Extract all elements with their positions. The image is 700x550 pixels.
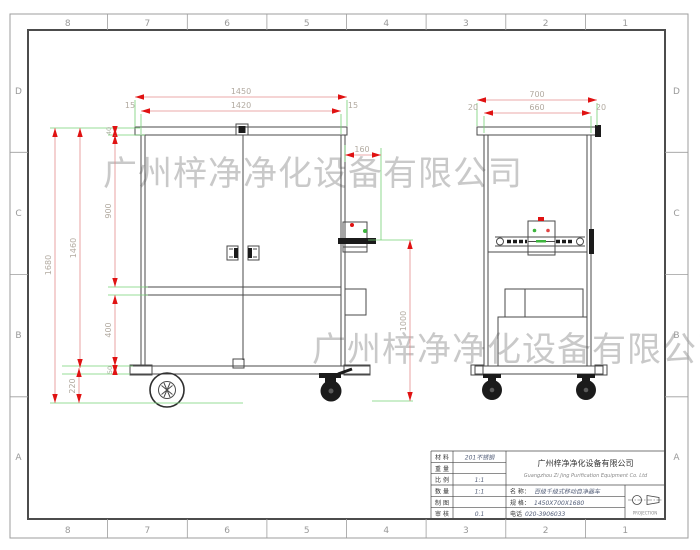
title-block-company: 广州梓净净化设备有限公司 Guangzhou Zi Jing Purificat… <box>524 458 648 479</box>
lower-side-box <box>345 289 366 315</box>
grid-col-label: 8 <box>65 526 71 536</box>
grid-col-label: 4 <box>383 526 389 536</box>
projection-label: PROJECTION <box>633 511 658 516</box>
green-indicator <box>363 229 367 233</box>
row-label: 重 量 <box>435 465 449 473</box>
row-value: 0.1 <box>475 511 485 518</box>
inner-border <box>28 30 665 519</box>
dim-1420: 1420 <box>231 101 251 110</box>
green-indicator <box>533 229 537 233</box>
grid-col-label: 3 <box>463 526 469 536</box>
grid-row-label: C <box>673 209 679 219</box>
dim-20-left: 20 <box>468 103 478 112</box>
dim-1000: 1000 <box>399 311 408 331</box>
dim-700: 700 <box>529 90 544 99</box>
name-label: 名 称： <box>510 488 530 496</box>
red-indicator <box>546 229 550 233</box>
drawing-svg: 广州梓净净化设备有限公司 广州梓净净化设备有限公司 8 7 6 5 <box>0 0 700 550</box>
cad-drawing-sheet: 广州梓净净化设备有限公司 广州梓净净化设备有限公司 8 7 6 5 <box>0 0 700 550</box>
watermark-text: 广州梓净净化设备有限公司 <box>103 154 523 194</box>
grid-col-label: 5 <box>304 526 310 536</box>
name-value: 百级千级式移动自净器车 <box>534 488 601 496</box>
grid-col-label: 2 <box>543 526 549 536</box>
title-block: 材 料 201不锈钢 重 量 比 例 1:1 数 量 1:1 制 图 审 核 0… <box>431 451 665 519</box>
door-handle-right <box>248 246 259 260</box>
red-button <box>538 217 544 221</box>
dimension-texts: 700 660 20 20 <box>468 90 606 112</box>
grid-col-label: 5 <box>304 19 310 29</box>
grid-col-label: 8 <box>65 19 71 29</box>
row-value: 1:1 <box>475 477 485 484</box>
grid-row-label: C <box>15 209 21 219</box>
row-label: 制 图 <box>435 499 449 507</box>
side-control-box <box>338 222 376 252</box>
left-caster <box>482 374 502 400</box>
watermark-upper: 广州梓净净化设备有限公司 <box>103 154 523 194</box>
dim-50: 50 <box>106 366 114 374</box>
dim-160: 160 <box>354 145 369 154</box>
grid-col-label: 7 <box>145 19 151 29</box>
grid-col-label: 1 <box>622 19 628 29</box>
plate-end-cap <box>595 125 601 137</box>
grid-col-label: 1 <box>622 526 628 536</box>
grid-row-label: D <box>673 87 680 97</box>
phone-value: 020-3906033 <box>525 511 566 518</box>
row-label: 数 量 <box>435 488 449 496</box>
grid-col-label: 3 <box>463 19 469 29</box>
grid-row-label: B <box>15 331 21 341</box>
side-latch <box>589 229 594 254</box>
dim-15-left: 15 <box>125 101 135 110</box>
dim-400: 400 <box>104 322 113 337</box>
spec-value: 1450X700X1680 <box>534 500 584 507</box>
push-rail <box>495 237 585 246</box>
control-panel <box>528 217 555 255</box>
rail-green-mark <box>536 240 546 243</box>
projection-symbol: PROJECTION <box>628 496 662 516</box>
grid-col-label: 6 <box>224 526 230 536</box>
spec-label: 规 格： <box>510 499 530 507</box>
grid-row-label: B <box>673 331 679 341</box>
dim-20-right: 20 <box>596 103 606 112</box>
right-caster <box>576 374 596 400</box>
top-plate <box>477 127 598 135</box>
grid-row-label: A <box>673 453 680 463</box>
dim-660: 660 <box>529 103 544 112</box>
company-name-cn: 广州梓净净化设备有限公司 <box>538 458 634 468</box>
dim-900: 900 <box>104 203 113 218</box>
row-label: 审 核 <box>435 510 449 518</box>
grid-col-label: 6 <box>224 19 230 29</box>
phone-label: 电话 <box>510 510 522 518</box>
watermark-text: 广州梓净净化设备有限公司 <box>312 330 700 370</box>
grid-row-label: A <box>15 453 22 463</box>
door-handle-left <box>227 246 238 260</box>
grid-labels-right: D C B A <box>673 87 680 463</box>
dim-1450: 1450 <box>231 87 251 96</box>
grid-labels-left: D C B A <box>15 87 22 463</box>
dim-40: 40 <box>105 127 113 135</box>
left-wheel <box>150 373 184 407</box>
dim-1460: 1460 <box>69 238 78 258</box>
title-block-product: 名 称： 百级千级式移动自净器车 规 格： 1450X700X1680 电话 0… <box>510 488 601 519</box>
row-value: 1:1 <box>475 489 485 496</box>
dim-1680: 1680 <box>44 255 53 275</box>
company-name-en: Guangzhou Zi Jing Purification Equipment… <box>524 473 648 479</box>
inner-box-upper <box>505 289 583 317</box>
row-value: 201不锈钢 <box>465 454 495 462</box>
red-indicator <box>350 223 354 227</box>
watermark-lower: 广州梓净净化设备有限公司 <box>312 330 700 370</box>
row-label: 比 例 <box>435 476 449 484</box>
dim-15-right: 15 <box>348 101 358 110</box>
center-bracket <box>233 359 244 368</box>
dim-220: 220 <box>68 378 77 393</box>
grid-col-label: 2 <box>543 19 549 29</box>
title-block-left-rows: 材 料 201不锈钢 重 量 比 例 1:1 数 量 1:1 制 图 审 核 0… <box>435 454 495 519</box>
row-label: 材 料 <box>435 454 449 462</box>
grid-row-label: D <box>15 87 22 97</box>
handle-bar <box>338 238 376 244</box>
grid-col-label: 7 <box>145 526 151 536</box>
grid-col-label: 4 <box>383 19 389 29</box>
top-center-clamp-core <box>239 126 246 133</box>
chassis <box>471 365 607 375</box>
